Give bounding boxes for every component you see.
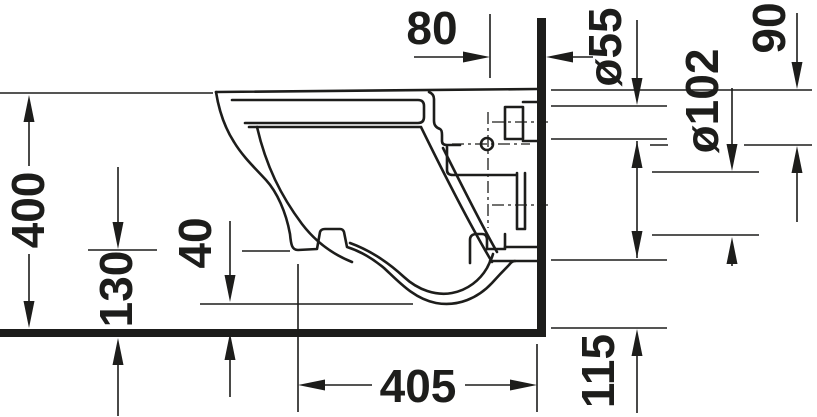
dim-40-label: 40 bbox=[169, 217, 221, 268]
centerlines bbox=[452, 112, 548, 228]
dim-90-label: 90 bbox=[743, 2, 795, 53]
toilet-back-step bbox=[429, 92, 460, 145]
dim-102-outlet-diameter: ø102 bbox=[676, 49, 738, 266]
toilet-top-surface bbox=[216, 89, 537, 92]
outlet-elbow bbox=[470, 234, 537, 263]
toilet-bowl-inner bbox=[257, 127, 352, 262]
dim-55-flush-diameter: ø55 bbox=[579, 7, 643, 258]
dim-80-wall-offset: 80 bbox=[406, 2, 593, 63]
dim-40-clearance: 40 bbox=[169, 217, 236, 397]
dim-90-hole-axis: 90 bbox=[743, 2, 803, 222]
dim-115-label: 115 bbox=[572, 334, 624, 408]
floor-section bbox=[0, 329, 546, 337]
toilet-mounting-bracket bbox=[447, 147, 516, 175]
wall-section bbox=[537, 18, 546, 336]
outlet-connector bbox=[517, 173, 525, 229]
technical-drawing: 80 ø55 90 ø102 400 130 40 bbox=[0, 0, 817, 417]
dimension-drawing-canvas: 80 ø55 90 ø102 400 130 40 bbox=[0, 0, 817, 417]
toilet-bowl-underside-inner bbox=[350, 243, 493, 294]
dim-102-label: ø102 bbox=[676, 49, 728, 154]
dim-405-depth: 405 bbox=[298, 360, 537, 412]
dim-115-outlet-height: 115 bbox=[572, 231, 643, 413]
dim-130-front-edge-height: 130 bbox=[90, 167, 142, 416]
dim-400-height: 400 bbox=[2, 95, 54, 328]
dim-55-label: ø55 bbox=[579, 7, 631, 86]
toilet-seat-lid bbox=[232, 100, 424, 123]
dim-80-label: 80 bbox=[406, 2, 457, 54]
dim-130-label: 130 bbox=[90, 251, 142, 328]
dim-400-label: 400 bbox=[2, 172, 54, 249]
dim-405-label: 405 bbox=[380, 360, 457, 412]
toilet-outline bbox=[216, 89, 548, 304]
